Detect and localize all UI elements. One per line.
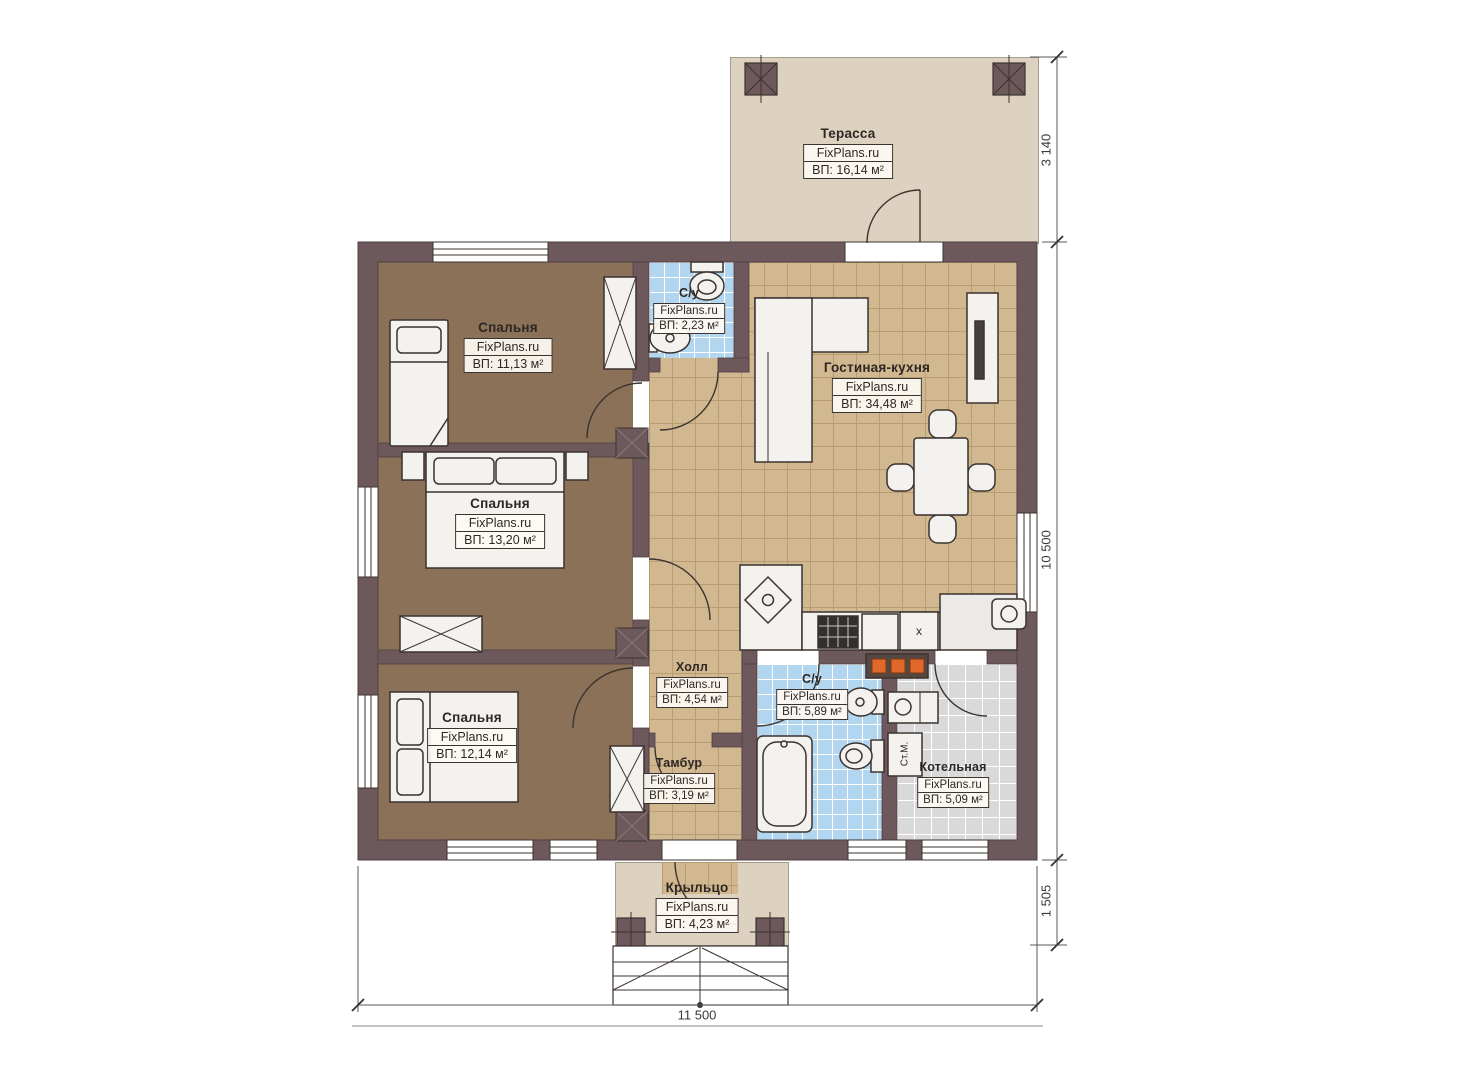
terrace-columns xyxy=(745,55,1025,103)
door-bedroom-mid xyxy=(649,559,710,620)
label-bedroom-bot: Спальня FixPlans.ru ВП: 12,14 м² xyxy=(427,710,517,763)
label-wc-bottom: С/у FixPlans.ru ВП: 5,89 м² xyxy=(776,672,848,720)
label-box: FixPlans.ru ВП: 34,48 м² xyxy=(832,378,922,413)
room-name: Спальня xyxy=(464,320,553,335)
dining-set xyxy=(887,410,995,543)
brand-text: FixPlans.ru xyxy=(657,899,738,916)
area-text: ВП: 5,89 м² xyxy=(777,705,847,719)
label-living: Гостиная-кухня FixPlans.ru ВП: 34,48 м² xyxy=(824,360,930,413)
area-text: ВП: 34,48 м² xyxy=(833,396,921,412)
room-name: Холл xyxy=(656,660,728,674)
single-bed xyxy=(390,320,448,446)
area-text: ВП: 3,19 м² xyxy=(644,789,714,803)
room-name: Гостиная-кухня xyxy=(824,360,930,375)
door-boiler xyxy=(935,664,987,716)
toilet-bottom xyxy=(840,740,884,772)
label-porch: Крыльцо FixPlans.ru ВП: 4,23 м² xyxy=(656,880,739,933)
room-name: С/у xyxy=(776,672,848,686)
label-bedroom-top: Спальня FixPlans.ru ВП: 11,13 м² xyxy=(464,320,553,373)
washbasin-bottom xyxy=(845,688,884,716)
label-box: FixPlans.ru ВП: 5,09 м² xyxy=(917,777,989,808)
label-box: FixPlans.ru ВП: 4,54 м² xyxy=(656,677,728,708)
area-text: ВП: 4,23 м² xyxy=(657,916,738,932)
area-text: ВП: 5,09 м² xyxy=(918,793,988,807)
label-box: FixPlans.ru ВП: 16,14 м² xyxy=(803,144,893,179)
tv-unit xyxy=(967,293,998,403)
brand-text: FixPlans.ru xyxy=(833,379,921,396)
stairs xyxy=(613,946,788,1008)
label-box: FixPlans.ru ВП: 4,23 м² xyxy=(656,898,739,933)
room-name: Котельная xyxy=(917,760,989,774)
room-name: Крыльцо xyxy=(656,880,739,895)
door-wc-top xyxy=(660,372,718,430)
door-terrace xyxy=(867,190,920,243)
room-name: Спальня xyxy=(455,496,545,511)
area-text: ВП: 16,14 м² xyxy=(804,162,892,178)
label-box: FixPlans.ru ВП: 2,23 м² xyxy=(653,303,725,334)
stove xyxy=(818,616,858,648)
brand-text: FixPlans.ru xyxy=(657,678,727,693)
label-hall: Холл FixPlans.ru ВП: 4,54 м² xyxy=(656,660,728,708)
dimension-house-width: 11 500 xyxy=(678,1008,717,1023)
brand-text: FixPlans.ru xyxy=(644,774,714,789)
kitchen-counters xyxy=(740,565,1026,650)
entrance-door-opening xyxy=(662,840,737,860)
radiator xyxy=(866,654,928,678)
label-box: FixPlans.ru ВП: 3,19 м² xyxy=(643,773,715,804)
area-text: ВП: 4,54 м² xyxy=(657,693,727,707)
label-bedroom-mid: Спальня FixPlans.ru ВП: 13,20 м² xyxy=(455,496,545,549)
brand-text: FixPlans.ru xyxy=(456,515,544,532)
room-name: Тамбур xyxy=(643,756,715,770)
label-tambour: Тамбур FixPlans.ru ВП: 3,19 м² xyxy=(643,756,715,804)
brand-text: FixPlans.ru xyxy=(428,729,516,746)
floor-plan-canvas: Терасса FixPlans.ru ВП: 16,14 м² Спальня… xyxy=(0,0,1473,1080)
room-name: С/у xyxy=(653,286,725,300)
area-text: ВП: 12,14 м² xyxy=(428,746,516,762)
terrace-door-opening xyxy=(845,242,943,262)
area-text: ВП: 2,23 м² xyxy=(654,319,724,333)
label-terrace: Терасса FixPlans.ru ВП: 16,14 м² xyxy=(803,126,893,179)
kitchen-unit-label: x xyxy=(916,624,922,638)
area-text: ВП: 11,13 м² xyxy=(465,356,552,372)
area-text: ВП: 13,20 м² xyxy=(456,532,544,548)
brand-text: FixPlans.ru xyxy=(804,145,892,162)
label-box: FixPlans.ru ВП: 5,89 м² xyxy=(776,689,848,720)
wardrobe xyxy=(604,277,636,369)
wardrobe-mid xyxy=(400,616,482,652)
label-box: FixPlans.ru ВП: 12,14 м² xyxy=(427,728,517,763)
label-boiler: Котельная FixPlans.ru ВП: 5,09 м² xyxy=(917,760,989,808)
brand-text: FixPlans.ru xyxy=(654,304,724,319)
room-name: Терасса xyxy=(803,126,893,141)
dimension-house-depth: 10 500 xyxy=(1039,530,1054,570)
label-box: FixPlans.ru ВП: 13,20 м² xyxy=(455,514,545,549)
dimension-porch-depth: 1 505 xyxy=(1039,885,1054,918)
label-box: FixPlans.ru ВП: 11,13 м² xyxy=(464,338,553,373)
door-bedroom-bot xyxy=(573,668,633,728)
washing-machine-label: Ст.М. xyxy=(900,742,911,767)
brand-text: FixPlans.ru xyxy=(918,778,988,793)
wardrobe-tambour xyxy=(610,746,644,812)
brand-text: FixPlans.ru xyxy=(777,690,847,705)
label-wc-top: С/у FixPlans.ru ВП: 2,23 м² xyxy=(653,286,725,334)
brand-text: FixPlans.ru xyxy=(465,339,552,356)
room-name: Спальня xyxy=(427,710,517,725)
bathtub xyxy=(757,736,812,832)
dimension-terrace-depth: 3 140 xyxy=(1039,134,1054,167)
boiler-sink-unit xyxy=(888,692,938,723)
